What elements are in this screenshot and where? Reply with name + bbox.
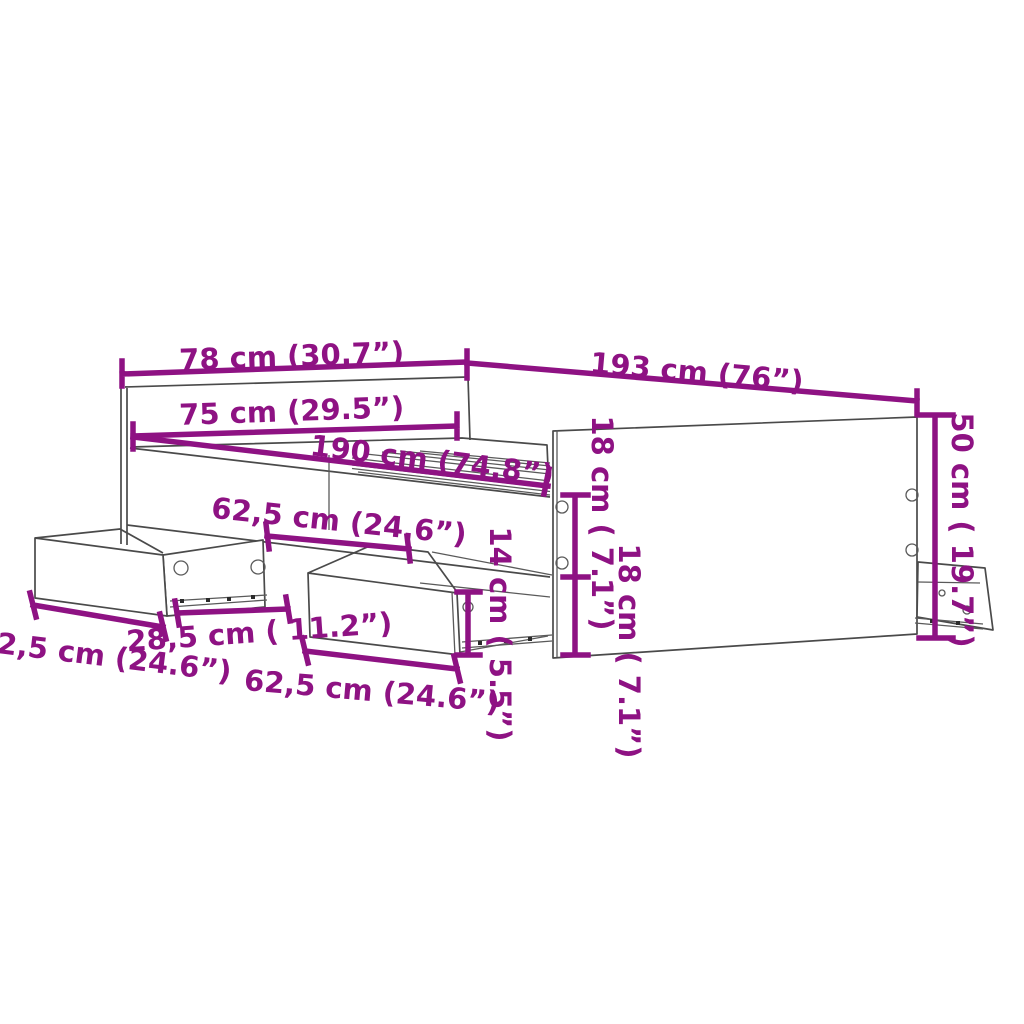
headboard-right-edge	[468, 377, 470, 440]
dimension-label: 18 cm ( 7.1”)	[612, 544, 646, 759]
dimension-label: 193 cm (76”)	[589, 346, 805, 399]
drawer-front-left	[35, 529, 267, 616]
diagram-canvas: 78 cm (30.7”) 193 cm (76”) 75 cm (29.5”)…	[0, 0, 1024, 1024]
dimension-label: 50 cm ( 19.7”)	[945, 412, 979, 647]
dimension-center-drawer-width: 62,5 cm (24.6”)	[243, 638, 501, 719]
headboard-top-edge	[125, 377, 468, 387]
headboard-left-edge	[121, 385, 127, 545]
dimension-label: 75 cm (29.5”)	[179, 390, 405, 432]
drawer-left-front	[35, 538, 167, 616]
dimension-label: 190 cm (74.8”)	[308, 428, 556, 492]
dimension-line	[457, 592, 480, 655]
dimension-label: 14 cm ( 5.5”)	[483, 527, 517, 742]
dimension-frame-length: 193 cm (76”)	[467, 346, 917, 414]
bed-frame-dimension-diagram: 78 cm (30.7”) 193 cm (76”) 75 cm (29.5”)…	[0, 0, 1024, 1024]
dimension-label: 78 cm (30.7”)	[179, 335, 405, 377]
dimension-label: 62,5 cm (24.6”)	[243, 663, 501, 719]
dimension-inner-length: 190 cm (74.8”)	[133, 428, 556, 494]
